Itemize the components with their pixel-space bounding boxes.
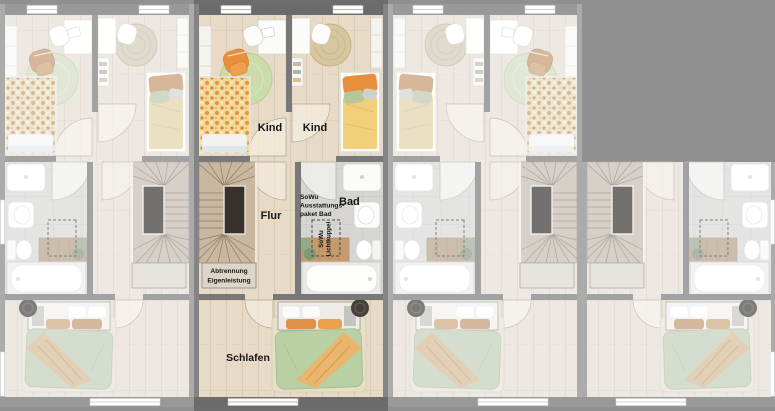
label-kind-left: Kind: [258, 122, 282, 134]
unit-1-floorplan: [0, 0, 194, 411]
svg-text:Ausstattungs-: Ausstattungs-: [300, 203, 344, 210]
label-kind-right: Kind: [303, 122, 327, 134]
floorplan-svg: Kind Kind Flur Bad Schlafen SoWu Ausstat…: [0, 0, 775, 411]
svg-text:Abtrennung: Abtrennung: [210, 268, 247, 275]
label-flur: Flur: [261, 210, 282, 222]
unit-3-floorplan: [388, 0, 582, 411]
svg-text:SoWu: SoWu: [318, 230, 325, 248]
floorplan-screenshot: Kind Kind Flur Bad Schlafen SoWu Ausstat…: [0, 0, 775, 411]
svg-text:Eigenleistung: Eigenleistung: [207, 278, 250, 285]
unit-4-floorplan: [582, 0, 775, 411]
svg-text:SoWu: SoWu: [300, 194, 319, 201]
unit-2-floorplan-highlighted: Kind Kind Flur Bad Schlafen SoWu Ausstat…: [194, 4, 388, 407]
label-schlafen: Schlafen: [226, 352, 270, 364]
svg-text:Lichtkuppel: Lichtkuppel: [326, 221, 333, 256]
svg-text:paket Bad: paket Bad: [300, 211, 332, 218]
